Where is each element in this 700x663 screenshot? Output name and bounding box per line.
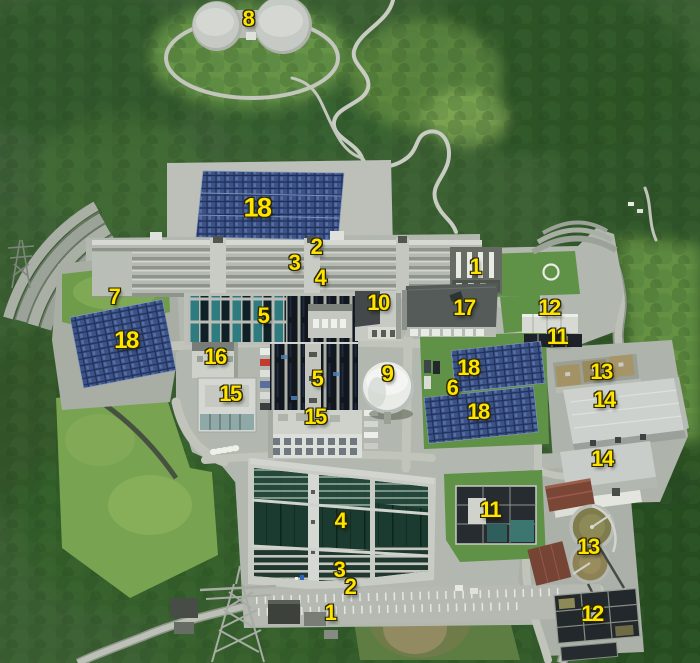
building-10 [355,291,401,341]
solar-array-top [196,171,344,240]
building-15-west [198,378,256,432]
filter-cells-teal [188,296,286,342]
band-walkway [304,238,320,298]
building-16 [192,342,238,378]
water-tank-9 [362,362,414,424]
building-12-upper [522,314,578,333]
building-11-bottom [456,486,536,544]
sedimentation-basins-bottom [248,458,436,590]
solar-array-east-upper [451,341,545,392]
filter-strip [184,291,401,345]
blue-equipment [300,575,304,580]
photo-scene [0,0,700,663]
aerial-facility-photo: 8182341710171251811161813956151418151411… [0,0,700,663]
filter-building-5 [270,342,358,412]
building-15-east [268,410,362,458]
band-walkway [210,238,226,298]
building-17 [402,283,498,337]
